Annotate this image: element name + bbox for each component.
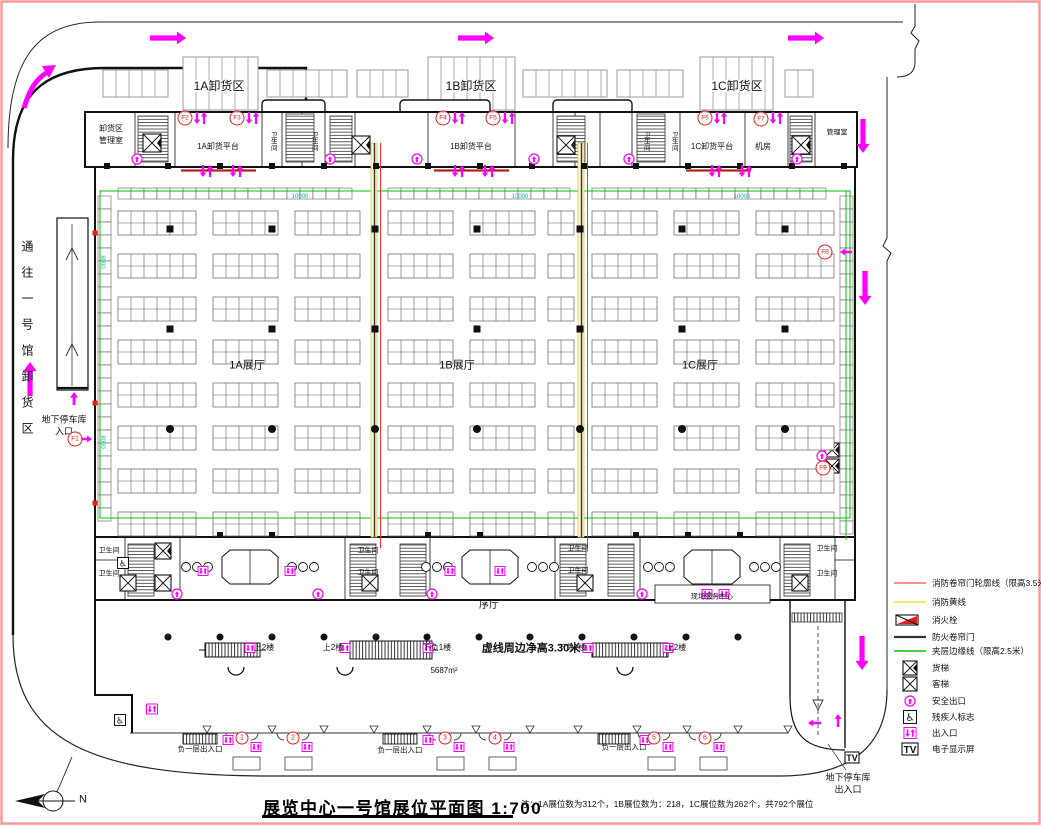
entrance-porch (285, 757, 312, 770)
top-service-band (85, 112, 857, 167)
office-label: 管理室 (827, 130, 848, 137)
fire-hydrant-icon (93, 501, 98, 506)
fire-marker-f2: F2 (178, 111, 193, 126)
entrance-number-1: 1 (236, 732, 249, 745)
escalator-up-label: 上2楼 (254, 644, 274, 652)
entrance-stairs (183, 734, 217, 744)
toilet-label: 卫生间 (568, 546, 589, 553)
booth-cell (592, 188, 605, 199)
entrance-icon (904, 728, 916, 739)
fire-marker-f4: F4 (436, 111, 451, 126)
booth-cell (787, 188, 800, 199)
stair-arc (337, 667, 353, 675)
leader-line (828, 744, 846, 770)
door-arc (689, 733, 696, 740)
escalator-down-label: 下负1楼 (558, 644, 586, 652)
legend-item-label: 出入口 (932, 729, 958, 738)
parking-exit-label-1: 地下停车库 (825, 774, 870, 783)
booth-cell (222, 188, 235, 199)
dimension-label: 10000 (734, 194, 751, 200)
screen-icon: TV (904, 745, 917, 756)
booth-cell (453, 188, 466, 199)
column (474, 226, 481, 233)
booth-cell (657, 188, 670, 199)
entrance-stairs (383, 734, 417, 744)
booth-cell (274, 188, 287, 199)
column (269, 326, 276, 333)
column (782, 226, 789, 233)
parking-stalls (103, 70, 168, 97)
flow-arrow-icon (856, 636, 869, 670)
column (167, 326, 174, 333)
road-direction-label: 通往一号馆卸货区 (21, 240, 33, 448)
column (104, 163, 110, 169)
service-center-label: 现场服务中心 (691, 594, 733, 601)
legend-item-label: 消防黄线 (932, 598, 966, 607)
safety-exit-icon (317, 595, 319, 597)
entrance-porch (700, 757, 727, 770)
booth-cell (709, 188, 722, 199)
column (269, 163, 275, 169)
column (473, 425, 481, 433)
entrance-icon (147, 704, 158, 714)
booth-cell (118, 188, 131, 199)
column (685, 532, 691, 538)
basement-entrance-label: 负一层出入口 (602, 743, 647, 751)
safety-exit-icon (431, 595, 433, 597)
column (371, 425, 379, 433)
wheelchair-icon: ♿ (119, 559, 127, 569)
column (474, 326, 481, 333)
queue-post (299, 563, 308, 572)
door-mark (526, 726, 534, 733)
north-compass (57, 757, 72, 792)
column (321, 163, 327, 169)
parking-stalls (267, 70, 347, 97)
door-arc (302, 733, 309, 740)
booth-cell (813, 188, 826, 199)
queue-post (761, 563, 770, 572)
parking-ramp (57, 218, 88, 390)
lobby-column (579, 634, 586, 641)
entrance-icon (663, 743, 673, 752)
fire-hydrant-icon (93, 231, 98, 236)
entrance-icon (285, 567, 295, 576)
entrance-number-2: 2 (287, 732, 300, 745)
booth-cell (440, 188, 453, 199)
legend-item-label: 货梯 (932, 664, 949, 673)
booth-cell (531, 188, 544, 199)
fire-hydrant-icon (93, 401, 98, 406)
column (269, 532, 275, 538)
column (782, 326, 789, 333)
safety-exit-icon (416, 160, 418, 162)
booth-cell (631, 188, 644, 199)
lobby-column (735, 634, 742, 641)
lobby-column (269, 634, 276, 641)
column (577, 326, 584, 333)
escalator-up-label: 上2楼 (666, 644, 686, 652)
door-mark (683, 726, 691, 733)
booth-cell (696, 188, 709, 199)
door-mark (633, 726, 641, 733)
escalator (350, 641, 432, 659)
entrance-icon (423, 736, 433, 745)
column (167, 226, 174, 233)
legend-item-label: 防火卷帘门 (932, 633, 975, 642)
booth-cell (235, 188, 248, 199)
booth-cell (544, 188, 557, 199)
floor-plan-drawing: ♿♿TV♿TV 1A卸货区 1B卸货区 1C卸货区 卸货区 管理室 1A卸货平台… (0, 0, 1041, 826)
parking-stalls (785, 70, 813, 97)
booth-cell (209, 188, 222, 199)
entrance-number-6: 6 (699, 732, 712, 745)
wheelchair-icon: ♿ (116, 716, 124, 726)
booth-cell (144, 188, 157, 199)
entrance-icon (223, 736, 233, 745)
legend-item-label: 电子显示屏 (932, 745, 975, 754)
column (165, 163, 171, 169)
booth-cell (800, 188, 813, 199)
flow-arrow-icon (788, 32, 824, 45)
door-mark (320, 726, 328, 733)
column (268, 425, 276, 433)
platform-label-1b: 1B卸货平台 (450, 143, 492, 151)
lobby-column (217, 634, 224, 641)
hall-label-1b: 1B展厅 (439, 361, 474, 372)
booth-cell (557, 188, 570, 199)
toilet-label: 卫生间 (269, 131, 276, 151)
queue-post (750, 563, 759, 572)
queue-post (528, 563, 537, 572)
booth-cell (261, 188, 274, 199)
entrance-icon (251, 743, 261, 752)
booth-cell (170, 188, 183, 199)
entrance-icon (504, 743, 514, 752)
column (737, 532, 743, 538)
entrance-number-4: 4 (489, 732, 502, 745)
dimension-label: 10000 (292, 194, 309, 200)
escalator-down-label: 下负1楼 (423, 644, 451, 652)
queue-post (772, 563, 781, 572)
toilet-label: 卫生间 (670, 131, 677, 151)
platform-label-1a: 1A卸货平台 (197, 143, 239, 151)
lobby-column (424, 634, 431, 641)
area-label: 5687m² (430, 667, 457, 675)
door-mark (472, 726, 480, 733)
column (679, 226, 686, 233)
parking-entry-label-1: 地下停车库 (41, 416, 86, 425)
fire-marker-f9: F9 (816, 461, 831, 476)
safety-exit-icon (641, 595, 643, 597)
legend-item-label: 夹层边缘线（限高2.5米） (932, 647, 1029, 656)
platform-label-1c: 1C卸货平台 (691, 143, 733, 151)
stair-arc (617, 667, 633, 675)
road-edge (897, 4, 919, 77)
queue-post (655, 563, 664, 572)
column (373, 163, 379, 169)
column (633, 532, 639, 538)
column (477, 532, 483, 538)
lobby-column (476, 634, 483, 641)
legend-item-label: 消防卷帘门轮廓线（限高3.5米） (932, 579, 1041, 588)
queue-post (666, 563, 675, 572)
fire-marker-f6: F6 (698, 111, 713, 126)
booth-cell (414, 188, 427, 199)
flow-arrow-icon (150, 32, 186, 45)
column (581, 163, 587, 169)
column (477, 163, 483, 169)
parking-stalls (357, 70, 408, 97)
wheelchair-icon: ♿ (905, 713, 914, 724)
booth-cell (479, 188, 492, 199)
booth-cell (774, 188, 787, 199)
title-underline (262, 815, 513, 818)
legend-item-label: 客梯 (932, 680, 949, 689)
toilet-label: 卫生间 (568, 568, 589, 575)
entrance-icon (495, 567, 505, 576)
column (372, 226, 379, 233)
parking-exit-label-2: 出入口 (834, 786, 861, 795)
flow-arrow-icon (857, 119, 870, 153)
booth-cell (401, 188, 414, 199)
fire-marker-f5: F5 (486, 111, 501, 126)
escalator (592, 643, 668, 657)
lobby-column (631, 634, 638, 641)
safety-exit-icon (821, 457, 823, 459)
parking-stalls (617, 70, 683, 97)
lobby-column (165, 634, 172, 641)
entrance-icon (198, 567, 208, 576)
safety-exit-icon (796, 160, 798, 162)
basement-entrance-label: 负一层出入口 (178, 745, 223, 753)
wall (95, 600, 132, 733)
column (679, 326, 686, 333)
entrance-number-3: 3 (439, 732, 452, 745)
door-mark (370, 726, 378, 733)
safety-exit-icon (909, 702, 911, 704)
door-mark (784, 726, 792, 733)
entrance-icon (302, 743, 312, 752)
booth-cell (248, 188, 261, 199)
safety-exit-icon (533, 160, 535, 162)
dock-office-label-2: 管理室 (99, 137, 123, 145)
entrance-porch (437, 757, 464, 770)
queue-post (422, 563, 431, 572)
door-arc (663, 733, 670, 740)
queue-post (550, 563, 559, 572)
booth-count-note: 注：1A展位数为312个，1B展位数为：218，1C展位数为262个，共792个… (521, 800, 813, 809)
booth-cell (670, 188, 683, 199)
toilet-label: 卫生间 (310, 131, 317, 151)
column (217, 163, 223, 169)
door-mark (574, 726, 582, 733)
toilet-label: 卫生间 (358, 548, 379, 555)
dimension-label: 10000 (512, 194, 529, 200)
entrance-number-5: 5 (648, 732, 661, 745)
zone-label-1c: 1C卸货区 (709, 80, 764, 92)
column (269, 226, 276, 233)
fire-marker-f7: F7 (754, 112, 769, 127)
fire-marker-f3: F3 (230, 111, 245, 126)
column (633, 163, 639, 169)
entrance-porch (233, 757, 260, 770)
door-arc (714, 733, 721, 740)
safety-exit-icon (628, 160, 630, 162)
column (678, 425, 686, 433)
lobby-column (373, 634, 380, 641)
booth-cell (183, 188, 196, 199)
zone-label-1b: 1B卸货区 (444, 80, 499, 92)
flow-arrow-icon (458, 32, 494, 45)
dimension-label: 8000 (99, 435, 105, 448)
safety-exit-icon (329, 160, 331, 162)
toilet-label: 卫生间 (642, 131, 649, 151)
booth-cell (492, 188, 505, 199)
door-mark (734, 726, 742, 733)
entrance-icon (454, 743, 464, 752)
dock-office-label-1: 卸货区 (99, 125, 123, 133)
booth-cell (605, 188, 618, 199)
lobby-column (527, 634, 534, 641)
booth-cell (326, 188, 339, 199)
column (372, 326, 379, 333)
toilet-label: 卫生间 (817, 571, 838, 578)
safety-exit-icon (136, 160, 138, 162)
booth-cell (388, 188, 401, 199)
queue-post (539, 563, 548, 572)
queue-post (310, 563, 319, 572)
booth-cell (157, 188, 170, 199)
booth-cell (427, 188, 440, 199)
column (576, 425, 584, 433)
booth-cell (618, 188, 631, 199)
legend-item-label: 消火栓 (932, 616, 958, 625)
booth-cell (466, 188, 479, 199)
plan-canvas: ♿♿TV♿TV (0, 0, 1041, 826)
flow-arrow-icon (808, 720, 821, 727)
north-label: N (79, 795, 87, 806)
booth-cell (131, 188, 144, 199)
toilet-label: 卫生间 (817, 546, 838, 553)
door-arc (251, 733, 258, 740)
safety-exit-icon (176, 595, 178, 597)
door-arc (479, 733, 486, 740)
booth-cell (761, 188, 774, 199)
flow-arrow-icon (835, 714, 842, 727)
escalator-up-label: 上2楼 (323, 644, 343, 652)
hall-label-1a: 1A展厅 (229, 361, 264, 372)
lobby-column (683, 634, 690, 641)
booth-cell (683, 188, 696, 199)
machine-room-label: 机房 (755, 143, 771, 151)
road-edge (883, 77, 891, 690)
flow-arrow-icon (70, 392, 78, 405)
entrance-porch (648, 757, 675, 770)
fire-marker-f1: F1 (68, 432, 83, 447)
lobby-column (321, 634, 328, 641)
toilet-label: 卫生间 (99, 571, 120, 578)
door-arc (277, 733, 284, 740)
flow-arrow-icon (859, 271, 872, 305)
door-arc (454, 733, 461, 740)
door-mark (423, 726, 431, 733)
stair-arc (228, 667, 244, 675)
hall-label-1c: 1C展厅 (682, 361, 718, 372)
booth-cell (196, 188, 209, 199)
toilet-label: 卫生间 (358, 570, 379, 577)
column (841, 163, 847, 169)
column (217, 532, 223, 538)
basement-entrance-label: 负一层出入口 (378, 746, 423, 754)
column (781, 425, 789, 433)
door-arc (504, 733, 511, 740)
column (685, 163, 691, 169)
entrance-icon (714, 743, 724, 752)
legend-item-label: 安全出口 (932, 697, 966, 706)
queue-post (433, 563, 442, 572)
column (789, 163, 795, 169)
door-mark (268, 726, 276, 733)
column (425, 163, 431, 169)
entrance-icon (445, 567, 455, 576)
stairs (608, 544, 634, 596)
door-mark (203, 726, 211, 733)
legend-item-label: 残疾人标志 (932, 713, 975, 722)
zone-label-1a: 1A卸货区 (192, 80, 247, 92)
booth-cell (339, 188, 352, 199)
column (577, 226, 584, 233)
column (166, 425, 174, 433)
dimension-label: 8000 (99, 255, 105, 268)
screen-icon: TV (846, 753, 858, 763)
queue-post (182, 563, 191, 572)
lobby-label: 序厅 (479, 601, 499, 611)
queue-post (644, 563, 653, 572)
toilet-label: 卫生间 (99, 548, 120, 555)
booth-cell (313, 188, 326, 199)
road-edge (13, 635, 887, 776)
fire-marker-f8: F8 (818, 245, 833, 260)
entrance-porch (489, 757, 516, 770)
column (425, 532, 431, 538)
booth-cell (644, 188, 657, 199)
ramp-grille (792, 613, 842, 622)
